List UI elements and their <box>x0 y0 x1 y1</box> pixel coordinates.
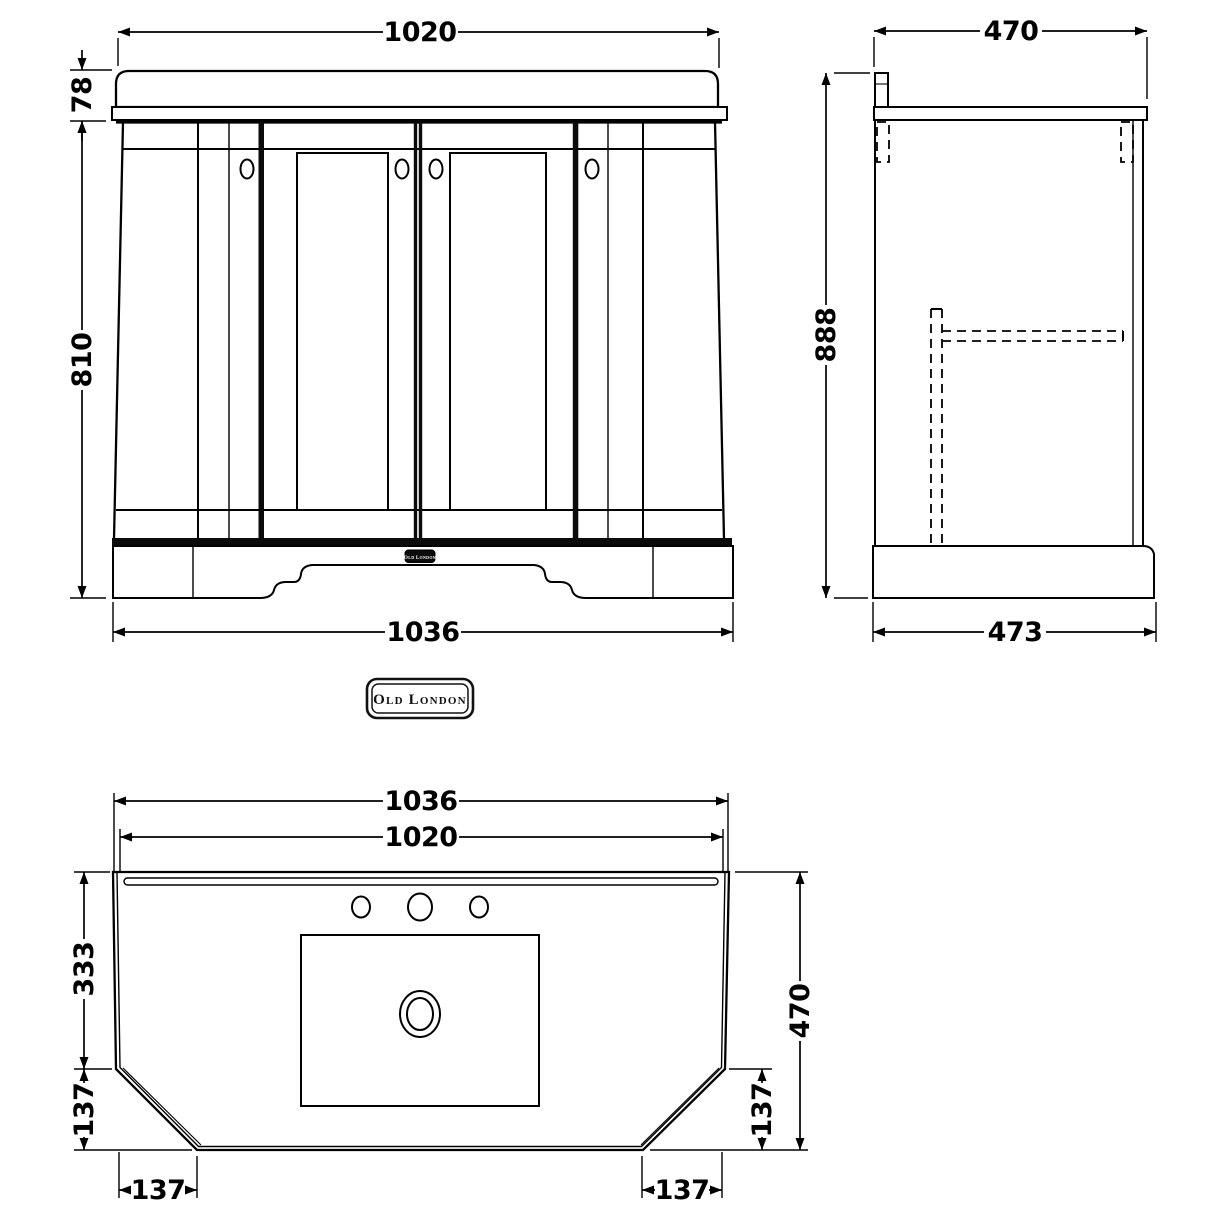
cabinet-side-left <box>114 122 123 539</box>
dim-plan-chamfer-width-right: 137 <box>642 1152 722 1206</box>
worktop-band <box>112 107 727 120</box>
side-elevation: 470 888 473 <box>811 16 1156 648</box>
front-worktop <box>112 71 727 122</box>
brand-logo: Old London <box>367 679 473 718</box>
dim-label-front-top-width: 1020 <box>383 17 456 48</box>
front-elevation: 1020 78 810 1036 <box>67 17 733 648</box>
dim-label-plan-left-depth: 333 <box>69 942 100 997</box>
door-handle-1 <box>241 160 254 179</box>
cabinet-side-right <box>715 122 724 539</box>
door-handle-3 <box>430 160 443 179</box>
worktop-upstand-tab <box>875 73 888 107</box>
dim-front-top-width: 1020 <box>118 17 719 68</box>
dim-label-front-cabinet-height: 810 <box>67 333 98 388</box>
worktop-side-slab <box>874 107 1147 120</box>
mounting-bracket-right <box>1121 122 1133 162</box>
door-handle-4 <box>586 160 599 179</box>
dim-label-plan-chamfer-depth-right: 137 <box>747 1083 778 1138</box>
dim-front-base-width: 1036 <box>113 602 733 648</box>
dim-side-overall-height: 888 <box>811 73 870 598</box>
dim-label-plan-basin-width: 1020 <box>384 822 457 853</box>
mounting-bracket-left <box>877 122 889 162</box>
worktop-slab <box>116 71 718 107</box>
dim-label-side-top-depth: 470 <box>984 16 1039 47</box>
basin-outline <box>113 872 729 1150</box>
cabinet-bottom-band <box>112 538 732 545</box>
dim-side-top-depth: 470 <box>874 16 1147 99</box>
dim-front-worktop-height: 78 <box>67 50 112 141</box>
badge-text: Old London <box>404 556 436 561</box>
dim-plan-chamfer-depth-right: 137 <box>729 1069 778 1150</box>
door-gap-center-b <box>419 122 422 538</box>
dim-label-plan-overall-width: 1036 <box>384 786 457 817</box>
drawing-sheet: 1020 78 810 1036 <box>0 0 1224 1224</box>
logo-text: Old London <box>373 692 467 708</box>
dim-label-plan-chamfer-depth-left: 137 <box>69 1083 100 1138</box>
dim-front-cabinet-height: 810 <box>67 121 106 598</box>
basin-bowl <box>301 935 539 1106</box>
dim-label-plan-chamfer-width-left: 137 <box>131 1175 186 1206</box>
dim-label-side-overall-height: 888 <box>811 308 842 363</box>
door-gap-center-a <box>414 122 417 538</box>
plinth-brand-badge: Old London <box>404 550 436 563</box>
side-plinth <box>873 546 1154 598</box>
dim-label-front-base-width: 1036 <box>386 617 459 648</box>
front-plinth: Old London <box>113 546 733 598</box>
door-handle-2 <box>396 160 409 179</box>
dim-label-front-worktop-height: 78 <box>67 77 98 114</box>
door-panel-wide-right <box>450 153 546 510</box>
dim-label-side-base-depth: 473 <box>988 617 1043 648</box>
dim-plan-left-depth: 333 <box>69 872 112 1069</box>
front-cabinet <box>112 122 732 545</box>
dim-label-plan-chamfer-width-right: 137 <box>655 1175 710 1206</box>
dim-plan-chamfer-width-left: 137 <box>119 1152 197 1206</box>
dim-plan-basin-width: 1020 <box>120 822 723 871</box>
dim-side-base-depth: 473 <box>873 602 1156 648</box>
door-gap-1 <box>259 122 265 538</box>
technical-drawing-svg: 1020 78 810 1036 <box>0 0 1224 1224</box>
door-gap-3 <box>573 122 579 538</box>
dim-label-plan-overall-depth: 470 <box>785 984 816 1039</box>
hidden-pipe-route <box>931 309 1123 546</box>
door-panel-wide-left <box>297 153 388 510</box>
plan-view: 1036 1020 <box>69 786 816 1206</box>
side-body <box>873 73 1154 598</box>
